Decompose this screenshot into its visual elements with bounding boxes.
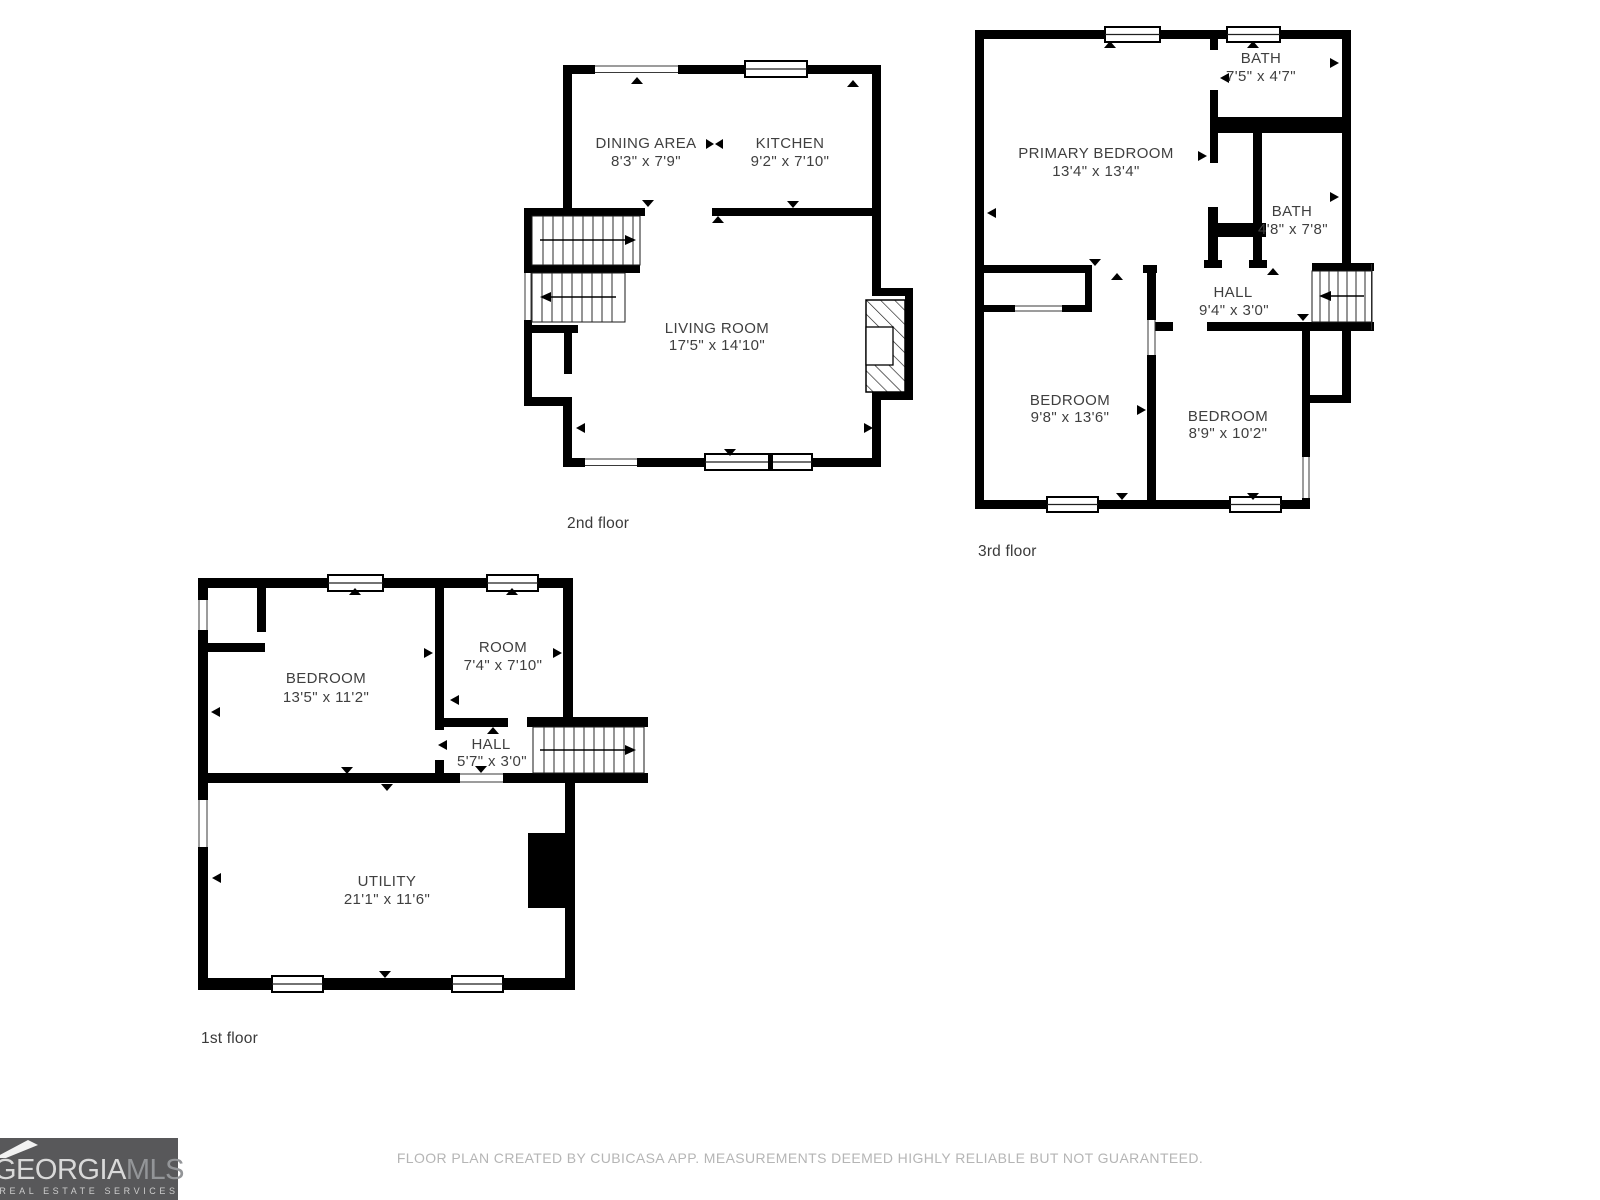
stairs-down-flight — [532, 273, 625, 322]
room-bath-upper: BATH 7'5" x 4'7" — [1226, 50, 1296, 85]
window — [272, 976, 323, 992]
floor-3-walls — [975, 30, 1374, 509]
room-label: PRIMARY BEDROOM — [1018, 145, 1173, 162]
room-kitchen: KITCHEN 9'2" x 7'10" — [751, 135, 830, 170]
door-opening — [1302, 457, 1310, 498]
stairs-direction-arrow — [540, 292, 616, 302]
window — [1230, 497, 1281, 512]
room-bedroom-left: BEDROOM 9'8" x 13'6" — [1030, 392, 1110, 426]
door-opening — [257, 632, 266, 643]
room-label: HALL — [471, 736, 510, 753]
window — [705, 454, 812, 470]
room-dimensions: 8'3" x 7'9" — [611, 153, 681, 170]
room-dimensions: 7'4" x 7'10" — [464, 657, 543, 674]
window — [595, 65, 678, 74]
room-label: BEDROOM — [286, 670, 366, 687]
window — [745, 61, 807, 77]
logo-wordmark: GEORGIAMLS — [0, 1155, 184, 1185]
room-dimensions: 9'8" x 13'6" — [1031, 409, 1110, 426]
room-dimensions: 21'1" x 11'6" — [344, 891, 430, 908]
stairs-up-flight — [533, 727, 644, 773]
room-bedroom: BEDROOM 13'5" x 11'2" — [283, 670, 369, 706]
room-label: BEDROOM — [1188, 408, 1268, 425]
room-hall: HALL 5'7" x 3'0" — [457, 736, 527, 770]
floor-2-plan: DINING AREA 8'3" x 7'9" KITCHEN 9'2" x 7… — [524, 61, 913, 532]
room-bedroom-right: BEDROOM 8'9" x 10'2" — [1188, 408, 1268, 442]
window — [585, 458, 637, 467]
room-label: UTILITY — [358, 873, 417, 890]
room-dimensions: 4'8" x 7'8" — [1258, 221, 1328, 238]
floor-1-openings — [198, 575, 538, 992]
door-opening — [564, 374, 572, 397]
door-opening — [1148, 320, 1155, 355]
stairs-direction-arrow — [540, 235, 636, 245]
closet-sliding-door — [1015, 306, 1062, 311]
room-dimensions: 9'2" x 7'10" — [751, 153, 830, 170]
room-label: HALL — [1213, 284, 1252, 301]
floor-plan-page: DINING AREA 8'3" x 7'9" KITCHEN 9'2" x 7… — [0, 0, 1600, 1200]
window — [452, 976, 503, 992]
room-label: KITCHEN — [756, 135, 825, 152]
floor-3-label: 3rd floor — [978, 543, 1037, 560]
room-label: DINING AREA — [595, 135, 696, 152]
room-dimensions: 9'4" x 3'0" — [1199, 302, 1269, 319]
room-dimensions: 13'4" x 13'4" — [1052, 163, 1139, 180]
room-dimensions: 5'7" x 3'0" — [457, 753, 527, 770]
fireplace-icon — [866, 300, 905, 392]
stairs-down-flight — [1312, 264, 1372, 330]
room-dimensions: 8'9" x 10'2" — [1189, 425, 1268, 442]
room-label: ROOM — [479, 639, 527, 656]
disclaimer-text: FLOOR PLAN CREATED BY CUBICASA APP. MEAS… — [0, 1150, 1600, 1166]
window — [1105, 27, 1160, 42]
door-opening — [460, 773, 503, 783]
room-dimensions: 13'5" x 11'2" — [283, 689, 369, 706]
room-dimensions: 7'5" x 4'7" — [1226, 68, 1296, 85]
stairs-direction-arrow — [1319, 291, 1364, 301]
stairs-up-flight — [532, 216, 640, 265]
room-dining-area: DINING AREA 8'3" x 7'9" — [595, 135, 696, 170]
floor-plan-canvas: DINING AREA 8'3" x 7'9" KITCHEN 9'2" x 7… — [0, 0, 1600, 1200]
logo-mls-text: MLS — [126, 1154, 184, 1186]
window — [524, 273, 532, 320]
floor-1-label: 1st floor — [201, 1030, 258, 1047]
room-primary-bedroom: PRIMARY BEDROOM 13'4" x 13'4" — [1018, 145, 1173, 180]
georgia-mls-logo: GEORGIAMLS REAL ESTATE SERVICES — [0, 1138, 178, 1200]
room-hall: HALL 9'4" x 3'0" — [1199, 284, 1269, 319]
room-label: BATH — [1241, 50, 1282, 67]
window — [198, 800, 208, 847]
room-room: ROOM 7'4" x 7'10" — [464, 639, 543, 674]
window — [1227, 27, 1280, 42]
room-label: BATH — [1272, 203, 1313, 220]
roof-icon — [0, 1139, 58, 1159]
floor-2-walls — [524, 65, 913, 467]
window — [1047, 497, 1098, 512]
room-utility: UTILITY 21'1" x 11'6" — [344, 873, 430, 908]
room-living-room: LIVING ROOM 17'5" x 14'10" — [665, 320, 769, 354]
window — [198, 600, 208, 630]
floor-2-label: 2nd floor — [567, 515, 629, 532]
chimney-block — [528, 833, 567, 908]
room-dimensions: 17'5" x 14'10" — [669, 337, 765, 354]
room-label: BEDROOM — [1030, 392, 1110, 409]
floor-1-plan: BEDROOM 13'5" x 11'2" ROOM 7'4" x 7'10" … — [198, 575, 648, 1047]
room-bath-lower: BATH 4'8" x 7'8" — [1258, 203, 1328, 238]
logo-tagline: REAL ESTATE SERVICES — [0, 1186, 179, 1196]
room-label: LIVING ROOM — [665, 320, 769, 337]
floor-3-plan: BATH 7'5" x 4'7" PRIMARY BEDROOM 13'4" x… — [975, 27, 1374, 560]
